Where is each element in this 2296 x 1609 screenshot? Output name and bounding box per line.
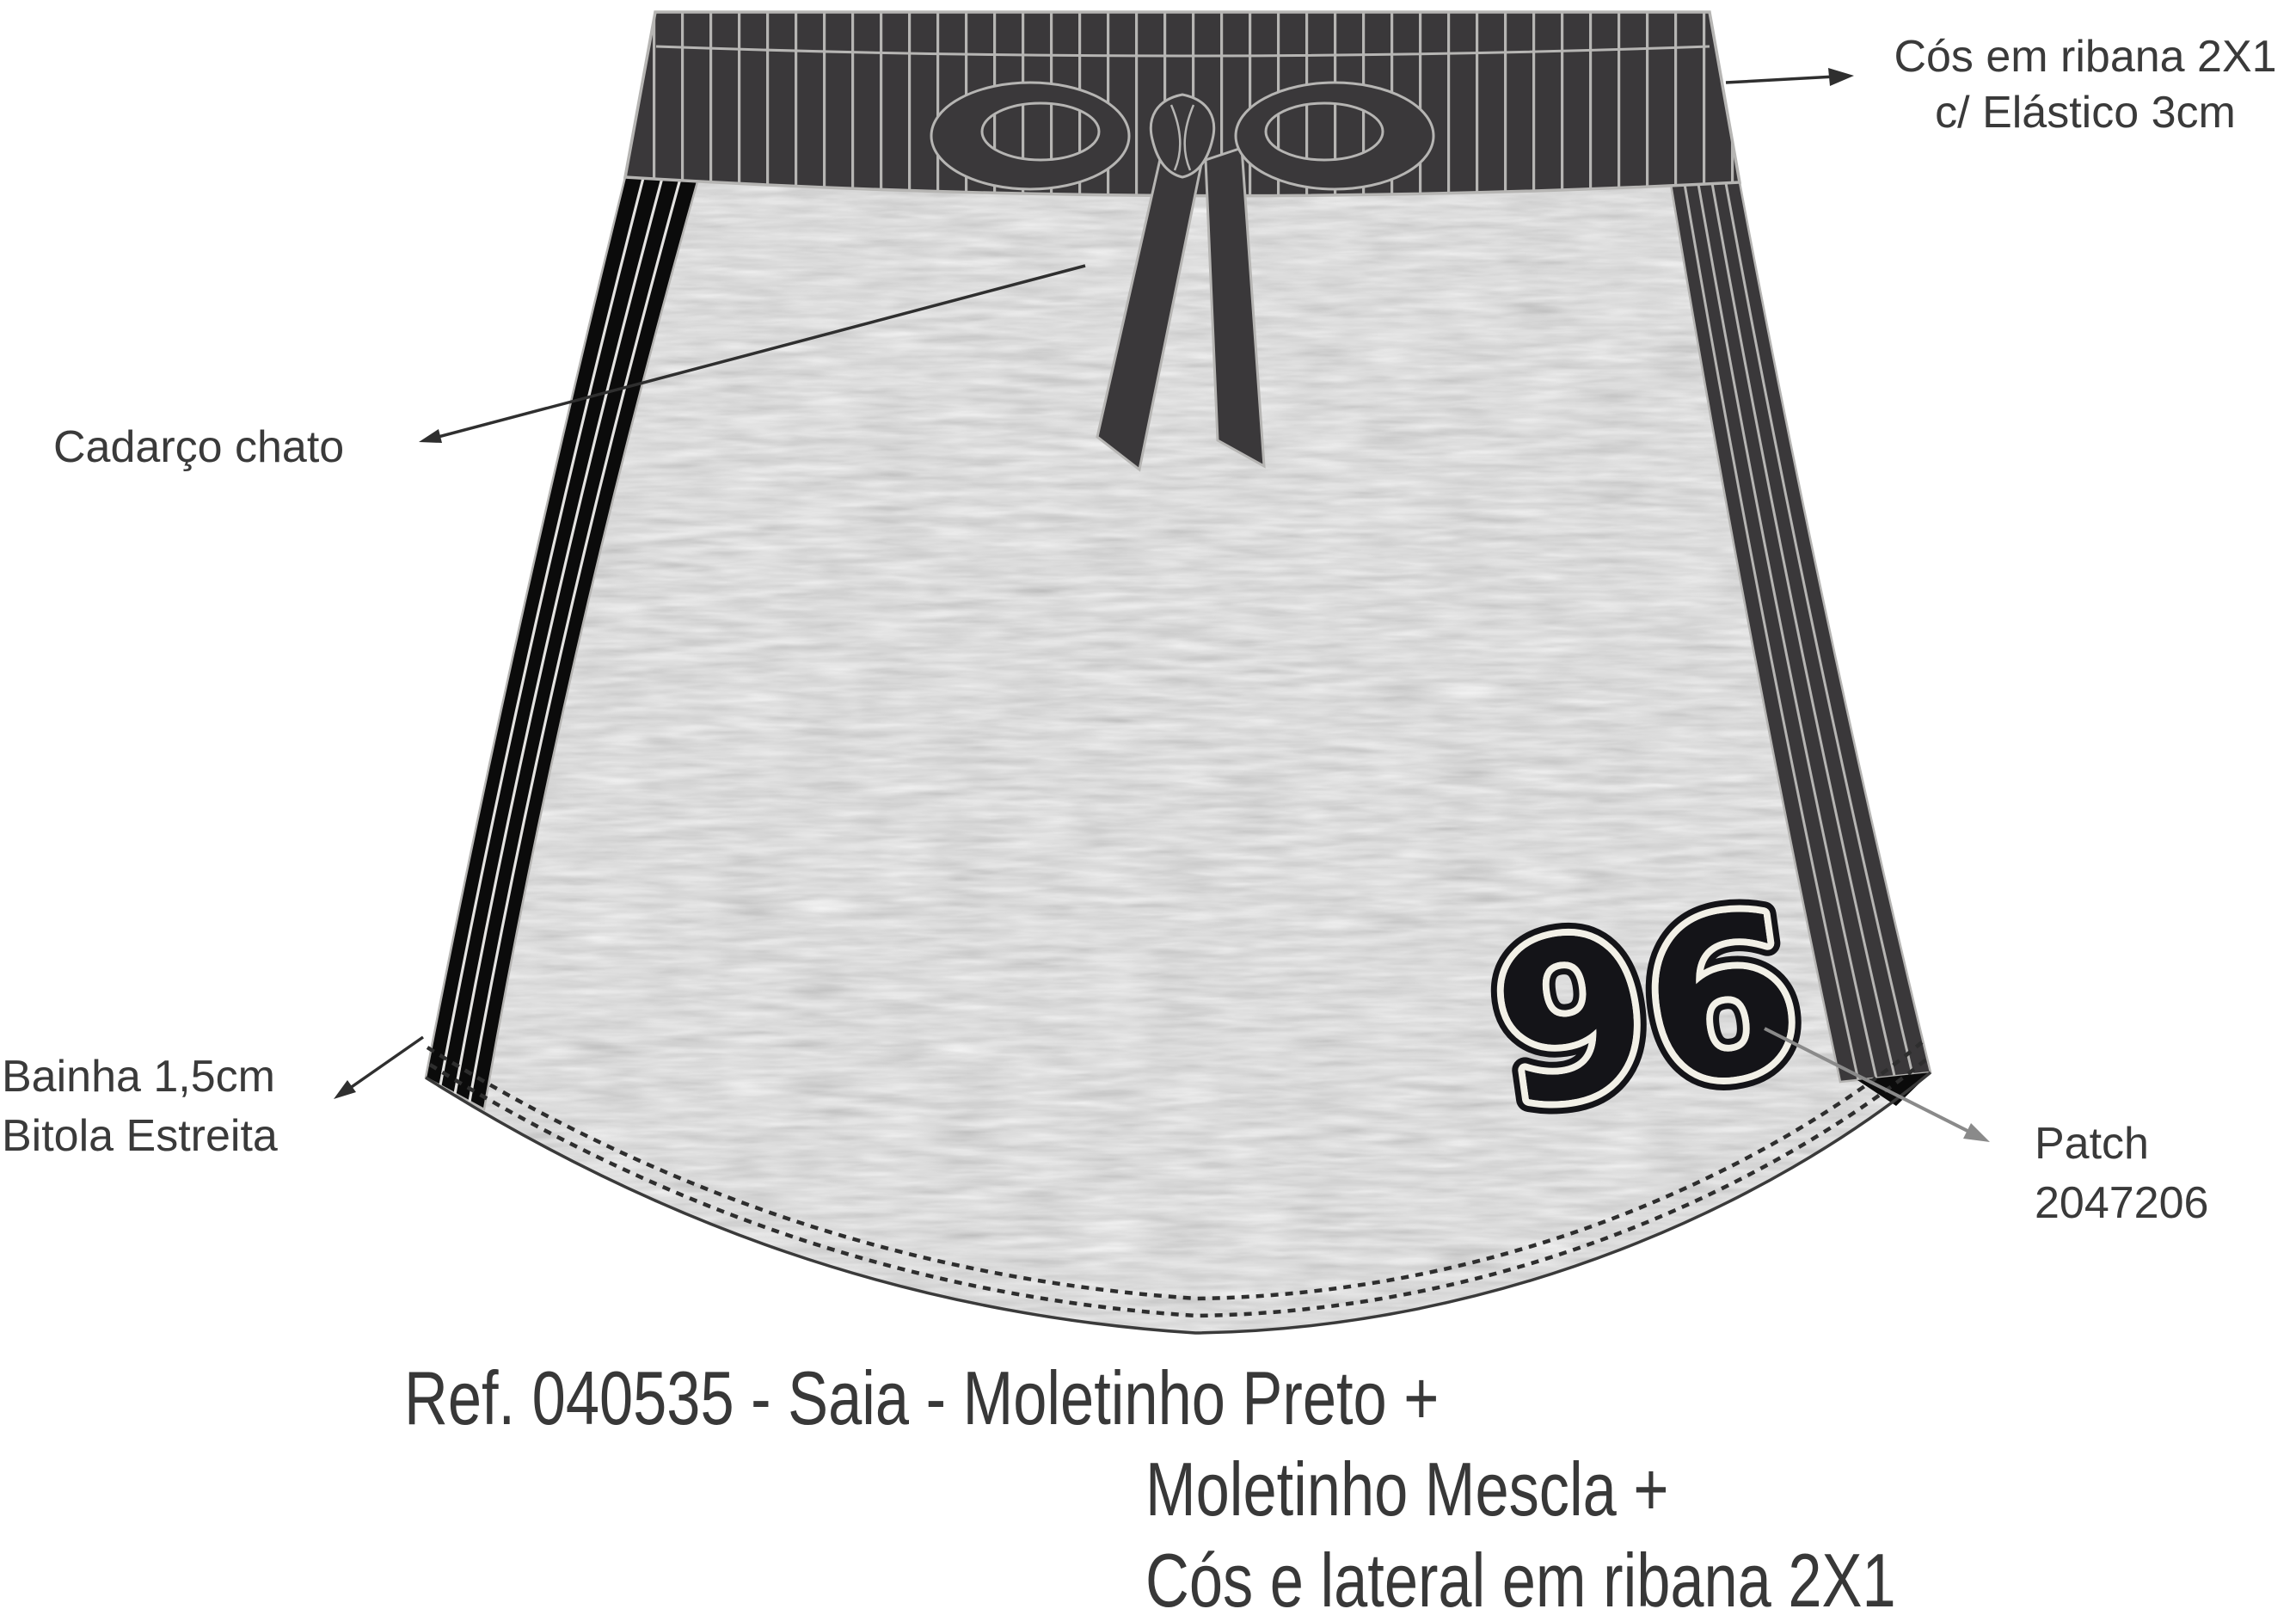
reference-caption-line2: Moletinho Mescla +	[1145, 1452, 1668, 1527]
annotation-drawstring: Cadarço chato	[53, 420, 344, 476]
bow-loop-left	[931, 83, 1129, 189]
annotation-waistband: Cós em ribana 2X1 c/ Elástico 3cm	[1873, 29, 2296, 141]
waistband-arrow	[1726, 68, 1854, 86]
number-patch-96: 96 96 96	[1480, 865, 1814, 1157]
annotation-hem: Bainha 1,5cm Bitola Estreita	[2, 1047, 278, 1165]
bow-loop-right	[1236, 83, 1433, 189]
annotation-patch: Patch 2047206	[2035, 1115, 2208, 1232]
annotation-patch-line2: 2047206	[2035, 1174, 2208, 1233]
annotation-waistband-line1: Cós em ribana 2X1	[1873, 29, 2296, 85]
patch-number: 96	[1480, 865, 1814, 1157]
reference-caption-line3: Cós e lateral em ribana 2X1	[1145, 1543, 1896, 1609]
annotation-hem-line1: Bainha 1,5cm	[2, 1047, 278, 1107]
annotation-patch-line1: Patch	[2035, 1115, 2208, 1174]
technical-sketch-page: 96 96 96 Cós em ribana 2X	[0, 0, 2296, 1609]
annotation-hem-line2: Bitola Estreita	[2, 1107, 278, 1166]
hem-arrow	[334, 1037, 423, 1099]
annotation-waistband-line2: c/ Elástico 3cm	[1873, 85, 2296, 141]
reference-caption-line1: Ref. 040535 - Saia - Moletinho Preto +	[404, 1360, 1439, 1436]
